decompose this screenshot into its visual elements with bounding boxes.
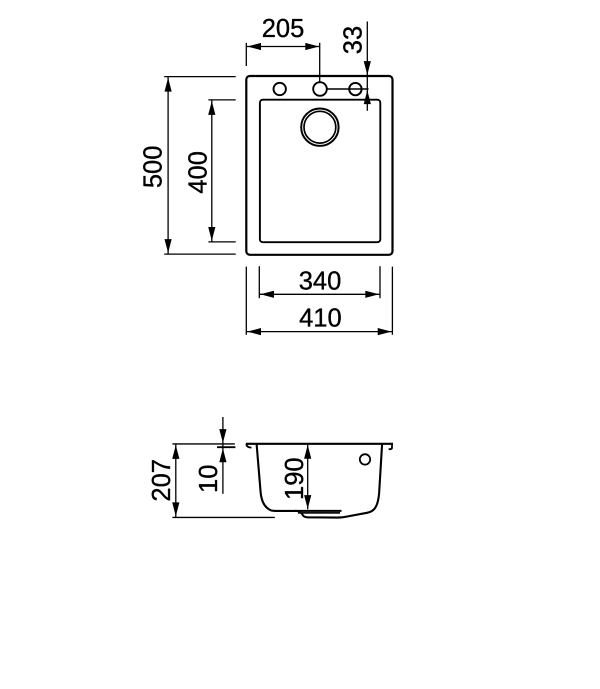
svg-text:205: 205: [262, 15, 305, 43]
svg-text:190: 190: [281, 457, 309, 500]
svg-text:33: 33: [340, 26, 368, 54]
svg-text:500: 500: [140, 146, 168, 189]
svg-text:410: 410: [299, 305, 342, 333]
svg-text:207: 207: [148, 459, 176, 502]
svg-text:340: 340: [299, 268, 342, 296]
svg-text:10: 10: [195, 465, 223, 493]
svg-text:400: 400: [185, 151, 213, 194]
